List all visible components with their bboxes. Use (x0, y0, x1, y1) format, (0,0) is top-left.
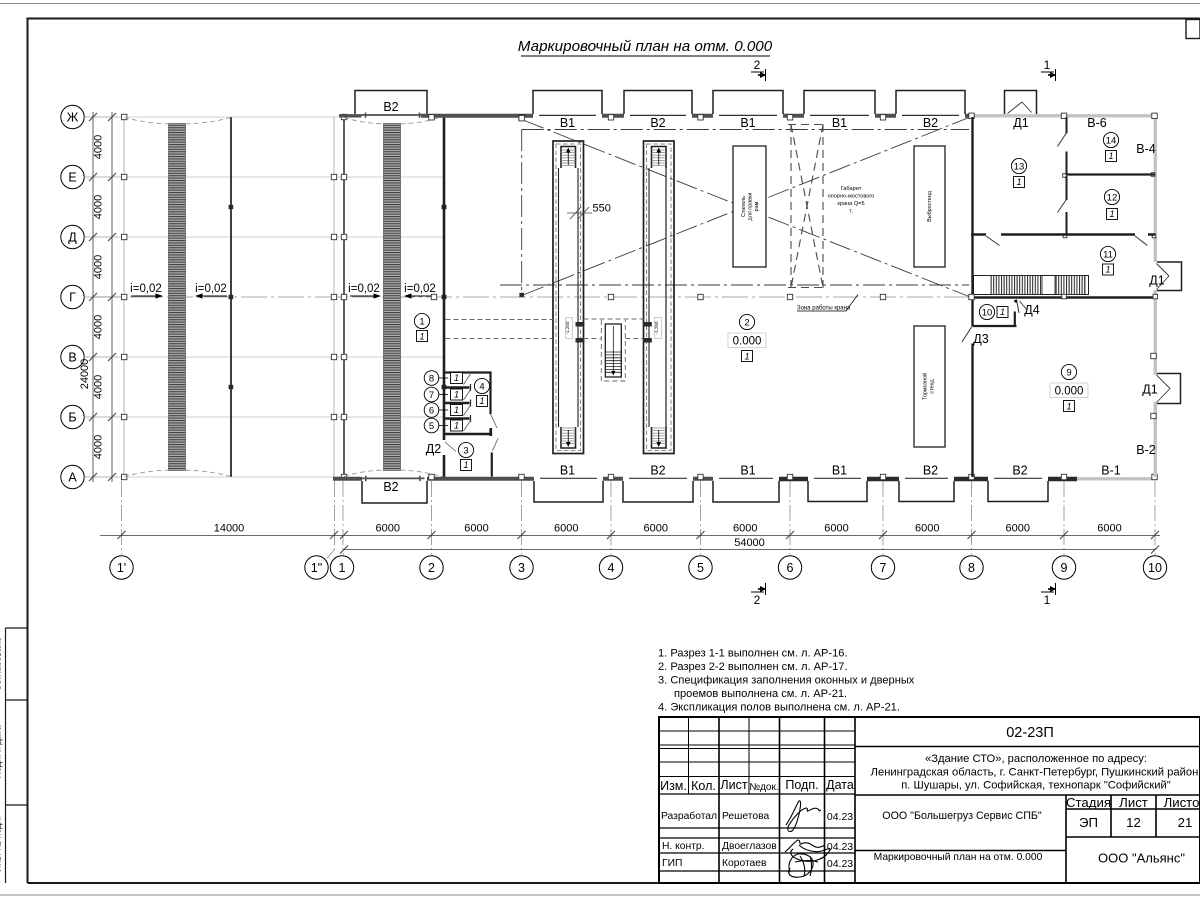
svg-text:6000: 6000 (644, 523, 668, 535)
svg-text:1: 1 (1044, 593, 1051, 607)
svg-text:11: 11 (1103, 249, 1113, 260)
svg-text:В1: В1 (832, 116, 847, 130)
svg-text:А: А (68, 471, 77, 485)
svg-text:4000: 4000 (93, 435, 105, 459)
svg-text:4000: 4000 (93, 135, 105, 159)
svg-text:1: 1 (419, 316, 424, 327)
svg-text:5: 5 (697, 561, 704, 575)
svg-text:В1: В1 (740, 116, 755, 130)
svg-text:6000: 6000 (1006, 523, 1030, 535)
svg-text:-1.250: -1.250 (565, 321, 570, 334)
svg-text:Г: Г (69, 291, 76, 305)
svg-text:1: 1 (454, 390, 459, 400)
svg-text:12: 12 (1126, 815, 1141, 830)
svg-text:В-4: В-4 (1136, 142, 1156, 156)
svg-text:Коротаев: Коротаев (722, 858, 767, 869)
svg-text:8: 8 (968, 561, 975, 575)
svg-text:В2: В2 (383, 480, 398, 494)
svg-text:2: 2 (744, 317, 749, 328)
svg-text:В2: В2 (923, 464, 938, 478)
svg-text:8: 8 (429, 373, 434, 384)
svg-text:Б: Б (68, 411, 76, 425)
svg-text:04.23: 04.23 (827, 811, 853, 823)
svg-text:1: 1 (1000, 307, 1005, 317)
svg-text:3. Спецификация заполнения око: 3. Спецификация заполнения оконных и две… (658, 675, 915, 687)
svg-text:6000: 6000 (824, 523, 848, 535)
svg-text:04.23: 04.23 (827, 858, 853, 870)
svg-text:4000: 4000 (93, 195, 105, 219)
svg-text:Д4: Д4 (1024, 303, 1039, 317)
svg-text:«Здание СТО», расположенное по: «Здание СТО», расположенное по адресу: (925, 753, 1147, 765)
svg-text:13: 13 (1014, 161, 1025, 172)
svg-text:i=0,02: i=0,02 (195, 283, 227, 295)
svg-text:В2: В2 (1012, 464, 1027, 478)
svg-text:Двоеглазов: Двоеглазов (722, 841, 777, 852)
svg-text:i=0,02: i=0,02 (348, 283, 380, 295)
svg-text:2. Разрез 2-2 выполнен см. л.: 2. Разрез 2-2 выполнен см. л. АР-17. (658, 661, 848, 673)
svg-text:Инв. № подл.: Инв. № подл. (0, 816, 3, 872)
svg-text:Габарит: Габарит (841, 186, 862, 192)
svg-text:стенд: стенд (930, 379, 936, 394)
svg-text:1: 1 (744, 352, 749, 362)
svg-text:№док.: №док. (749, 782, 778, 793)
svg-text:проемов выполнена см. л. АР-21: проемов выполнена см. л. АР-21. (674, 688, 847, 700)
svg-text:Листов: Листов (1164, 795, 1200, 810)
svg-text:Ленинградская область, г. Санк: Ленинградская область, г. Санкт-Петербур… (871, 767, 1200, 779)
svg-text:Н. контр.: Н. контр. (662, 841, 705, 852)
svg-text:Д1: Д1 (1013, 116, 1028, 130)
svg-text:1: 1 (454, 405, 459, 415)
svg-text:В2: В2 (383, 100, 398, 114)
svg-text:Маркировочный план на отм. 0.0: Маркировочный план на отм. 0.000 (518, 38, 773, 55)
svg-text:Маркировочный план на отм. 0.0: Маркировочный план на отм. 0.000 (874, 852, 1043, 863)
svg-text:1: 1 (1044, 58, 1051, 72)
svg-text:-1.250: -1.250 (654, 321, 659, 334)
svg-text:1: 1 (1016, 177, 1021, 187)
svg-text:1: 1 (1066, 402, 1071, 412)
svg-text:т.: т. (849, 209, 853, 215)
svg-text:4000: 4000 (93, 375, 105, 399)
svg-text:1": 1" (311, 561, 322, 575)
svg-text:Д2: Д2 (426, 442, 441, 456)
svg-text:Подп. и дата: Подп. и дата (0, 725, 3, 778)
svg-text:21: 21 (1178, 815, 1193, 830)
svg-text:6000: 6000 (554, 523, 578, 535)
svg-text:Ж: Ж (67, 111, 79, 125)
svg-text:4: 4 (479, 381, 484, 392)
svg-text:9: 9 (1061, 561, 1068, 575)
svg-text:Тормозной: Тормозной (922, 373, 929, 400)
svg-text:В1: В1 (560, 464, 575, 478)
svg-text:1: 1 (454, 421, 459, 431)
svg-text:В-2: В-2 (1136, 443, 1156, 457)
svg-text:Лист: Лист (1119, 795, 1148, 810)
svg-text:Решетова: Решетова (722, 811, 769, 822)
svg-text:В: В (68, 351, 76, 365)
svg-text:0.000: 0.000 (733, 335, 762, 347)
svg-text:В2: В2 (650, 116, 665, 130)
svg-text:6000: 6000 (376, 523, 400, 535)
svg-text:ГИП: ГИП (662, 858, 682, 869)
svg-text:Изм.: Изм. (660, 779, 687, 793)
svg-text:Разработал: Разработал (661, 810, 717, 822)
svg-text:1: 1 (479, 396, 484, 406)
svg-text:п. Шушары, ул. Софийская, техн: п. Шушары, ул. Софийская, технопарк "Соф… (901, 780, 1171, 792)
svg-text:24000: 24000 (79, 359, 91, 390)
svg-text:В-6: В-6 (1087, 116, 1107, 130)
svg-text:Стапель: Стапель (741, 196, 747, 217)
svg-text:Подп.: Подп. (785, 778, 818, 792)
svg-text:550: 550 (593, 203, 611, 215)
svg-text:опорно-мостового: опорно-мостового (828, 194, 875, 200)
svg-text:7: 7 (880, 561, 887, 575)
svg-text:1. Разрез 1-1 выполнен см. л.: 1. Разрез 1-1 выполнен см. л. АР-16. (658, 648, 848, 660)
svg-text:i=0,02: i=0,02 (404, 283, 436, 295)
svg-text:крана Q=5: крана Q=5 (837, 201, 864, 207)
svg-text:02-23П: 02-23П (1006, 725, 1054, 741)
svg-text:Д1: Д1 (1149, 274, 1164, 288)
svg-text:1: 1 (454, 373, 459, 383)
svg-text:1': 1' (117, 561, 126, 575)
svg-text:6: 6 (429, 405, 434, 416)
svg-text:рам: рам (754, 201, 760, 211)
svg-text:i=0,02: i=0,02 (130, 283, 162, 295)
svg-text:9: 9 (1066, 367, 1071, 378)
svg-text:2: 2 (428, 561, 435, 575)
svg-text:6: 6 (787, 561, 794, 575)
svg-text:1: 1 (1108, 151, 1113, 161)
svg-text:10: 10 (1148, 561, 1162, 575)
svg-text:В-1: В-1 (1101, 464, 1121, 478)
svg-text:Стадия: Стадия (1066, 795, 1111, 810)
svg-text:12: 12 (1107, 192, 1118, 203)
svg-text:4000: 4000 (93, 315, 105, 339)
svg-text:1: 1 (339, 561, 346, 575)
svg-text:1: 1 (1105, 265, 1110, 275)
svg-text:0.000: 0.000 (1055, 385, 1084, 397)
svg-text:6000: 6000 (464, 523, 488, 535)
svg-text:ЭП: ЭП (1079, 815, 1098, 830)
svg-text:3: 3 (518, 561, 525, 575)
svg-text:4: 4 (608, 561, 615, 575)
svg-text:Е: Е (68, 171, 76, 185)
svg-text:Лист: Лист (720, 778, 747, 792)
svg-text:Д: Д (68, 231, 77, 245)
svg-text:В2: В2 (923, 116, 938, 130)
svg-text:14: 14 (1106, 135, 1117, 146)
svg-text:14000: 14000 (214, 523, 245, 535)
svg-text:Д3: Д3 (973, 332, 988, 346)
svg-text:1: 1 (419, 332, 424, 342)
svg-text:Зона работы крана: Зона работы крана (797, 306, 851, 312)
svg-text:В1: В1 (560, 116, 575, 130)
svg-text:ООО "Альянс": ООО "Альянс" (1098, 851, 1185, 866)
svg-text:10: 10 (982, 307, 993, 318)
svg-text:В1: В1 (740, 464, 755, 478)
svg-text:5: 5 (429, 421, 434, 432)
svg-text:Д1: Д1 (1142, 383, 1157, 397)
svg-text:1: 1 (463, 460, 468, 470)
svg-text:Кол.: Кол. (691, 779, 716, 793)
svg-text:2: 2 (754, 58, 761, 72)
svg-text:3: 3 (463, 445, 468, 456)
svg-text:6000: 6000 (1097, 523, 1121, 535)
svg-text:1: 1 (1109, 209, 1114, 219)
svg-text:6000: 6000 (733, 523, 757, 535)
svg-text:2: 2 (754, 593, 761, 607)
svg-text:В1: В1 (832, 464, 847, 478)
svg-text:для правки: для правки (748, 193, 754, 221)
svg-text:Дата: Дата (826, 778, 854, 792)
svg-text:7: 7 (429, 390, 434, 401)
svg-text:6000: 6000 (915, 523, 939, 535)
svg-text:Выбростенд: Выбростенд (927, 190, 933, 222)
svg-text:4000: 4000 (93, 255, 105, 279)
svg-text:54000: 54000 (734, 537, 765, 549)
svg-text:Согласовано: Согласовано (0, 637, 3, 691)
svg-text:4. Экспликация полов выполнена: 4. Экспликация полов выполнена см. л. АР… (658, 702, 900, 714)
svg-text:В2: В2 (650, 464, 665, 478)
svg-text:04.23: 04.23 (827, 841, 853, 853)
svg-text:ООО "Большегруз Сервис СПБ": ООО "Большегруз Сервис СПБ" (882, 810, 1042, 822)
